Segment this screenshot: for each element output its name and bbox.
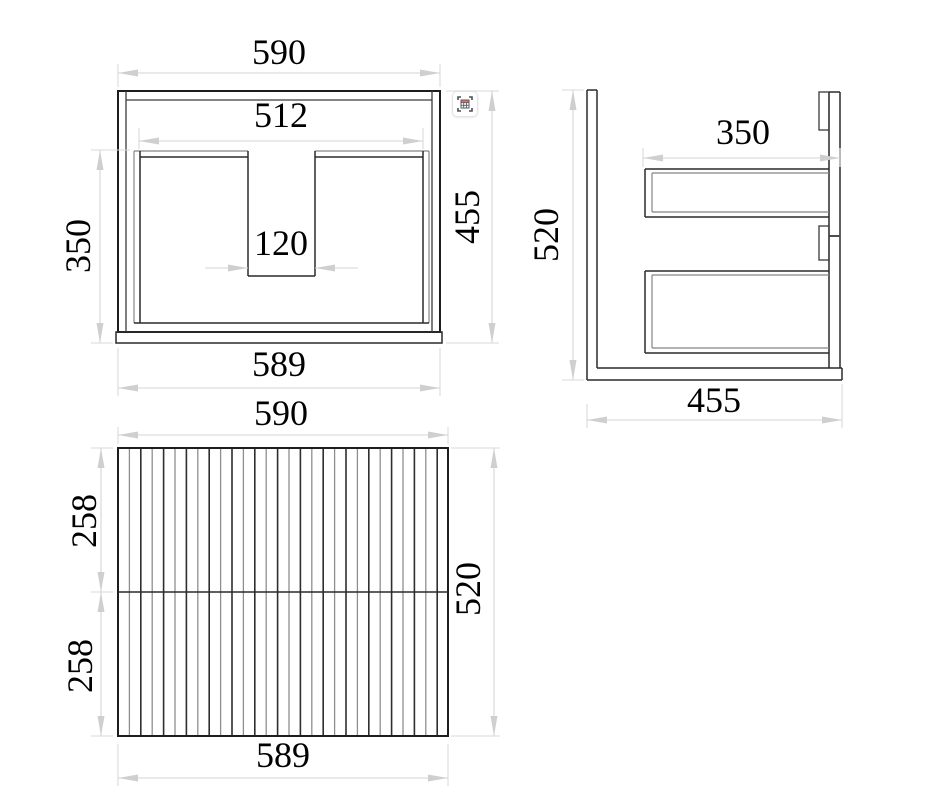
side-dim-drawer-depth: 350 xyxy=(643,112,840,167)
side-overall-height-label: 520 xyxy=(526,208,566,262)
side-upper-drawer xyxy=(645,169,829,217)
front-dim-upper-drawer-height: 258 xyxy=(64,448,113,592)
plan-overall-width-label: 590 xyxy=(252,32,306,72)
side-dim-overall-depth: 455 xyxy=(587,380,842,428)
front-lower-drawer-height-label: 258 xyxy=(60,639,100,693)
technical-drawing-canvas: 590 512 120 xyxy=(0,0,931,812)
plan-inner-width-label: 512 xyxy=(254,95,308,135)
side-overall-depth-label: 455 xyxy=(687,380,741,420)
vanity-cabinet-drawing: 590 512 120 xyxy=(0,0,931,812)
plan-dim-overall-width: 590 xyxy=(118,32,440,87)
side-view: 350 520 455 xyxy=(526,90,842,428)
plan-notch-width-label: 120 xyxy=(254,223,308,263)
plan-overall-depth-label: 455 xyxy=(447,190,487,244)
front-dim-overall-height: 520 xyxy=(448,448,500,736)
side-back-and-bottom-panels xyxy=(587,90,842,380)
plan-front-edge-width-label: 589 xyxy=(252,344,306,384)
side-dim-overall-height: 520 xyxy=(526,90,584,380)
front-view: 590 258 258 xyxy=(60,393,500,786)
front-bottom-width-label: 589 xyxy=(256,735,310,775)
side-front-panel xyxy=(819,92,840,368)
side-lower-drawer xyxy=(645,271,829,353)
plan-dim-overall-depth: 455 xyxy=(446,91,499,343)
table-capture-icon xyxy=(453,92,477,116)
plan-basin-depth-label: 350 xyxy=(58,219,98,273)
plan-dim-front-edge-width: 589 xyxy=(118,344,440,396)
side-drawer-depth-label: 350 xyxy=(716,112,770,152)
plan-dim-inner-width: 512 xyxy=(139,95,423,149)
front-dim-overall-width: 590 xyxy=(118,393,448,444)
plan-dim-basin-depth: 350 xyxy=(58,150,130,343)
front-dim-bottom-width: 589 xyxy=(118,735,448,786)
front-overall-width-label: 590 xyxy=(254,393,308,433)
front-overall-height-label: 520 xyxy=(448,562,488,616)
plan-view: 590 512 120 xyxy=(58,32,499,396)
front-upper-drawer-height-label: 258 xyxy=(64,494,104,548)
plan-dim-notch-width: 120 xyxy=(205,223,358,272)
front-dim-lower-drawer-height: 258 xyxy=(60,592,113,736)
front-cabinet-outline xyxy=(118,448,448,736)
table-capture-button[interactable] xyxy=(452,91,478,117)
